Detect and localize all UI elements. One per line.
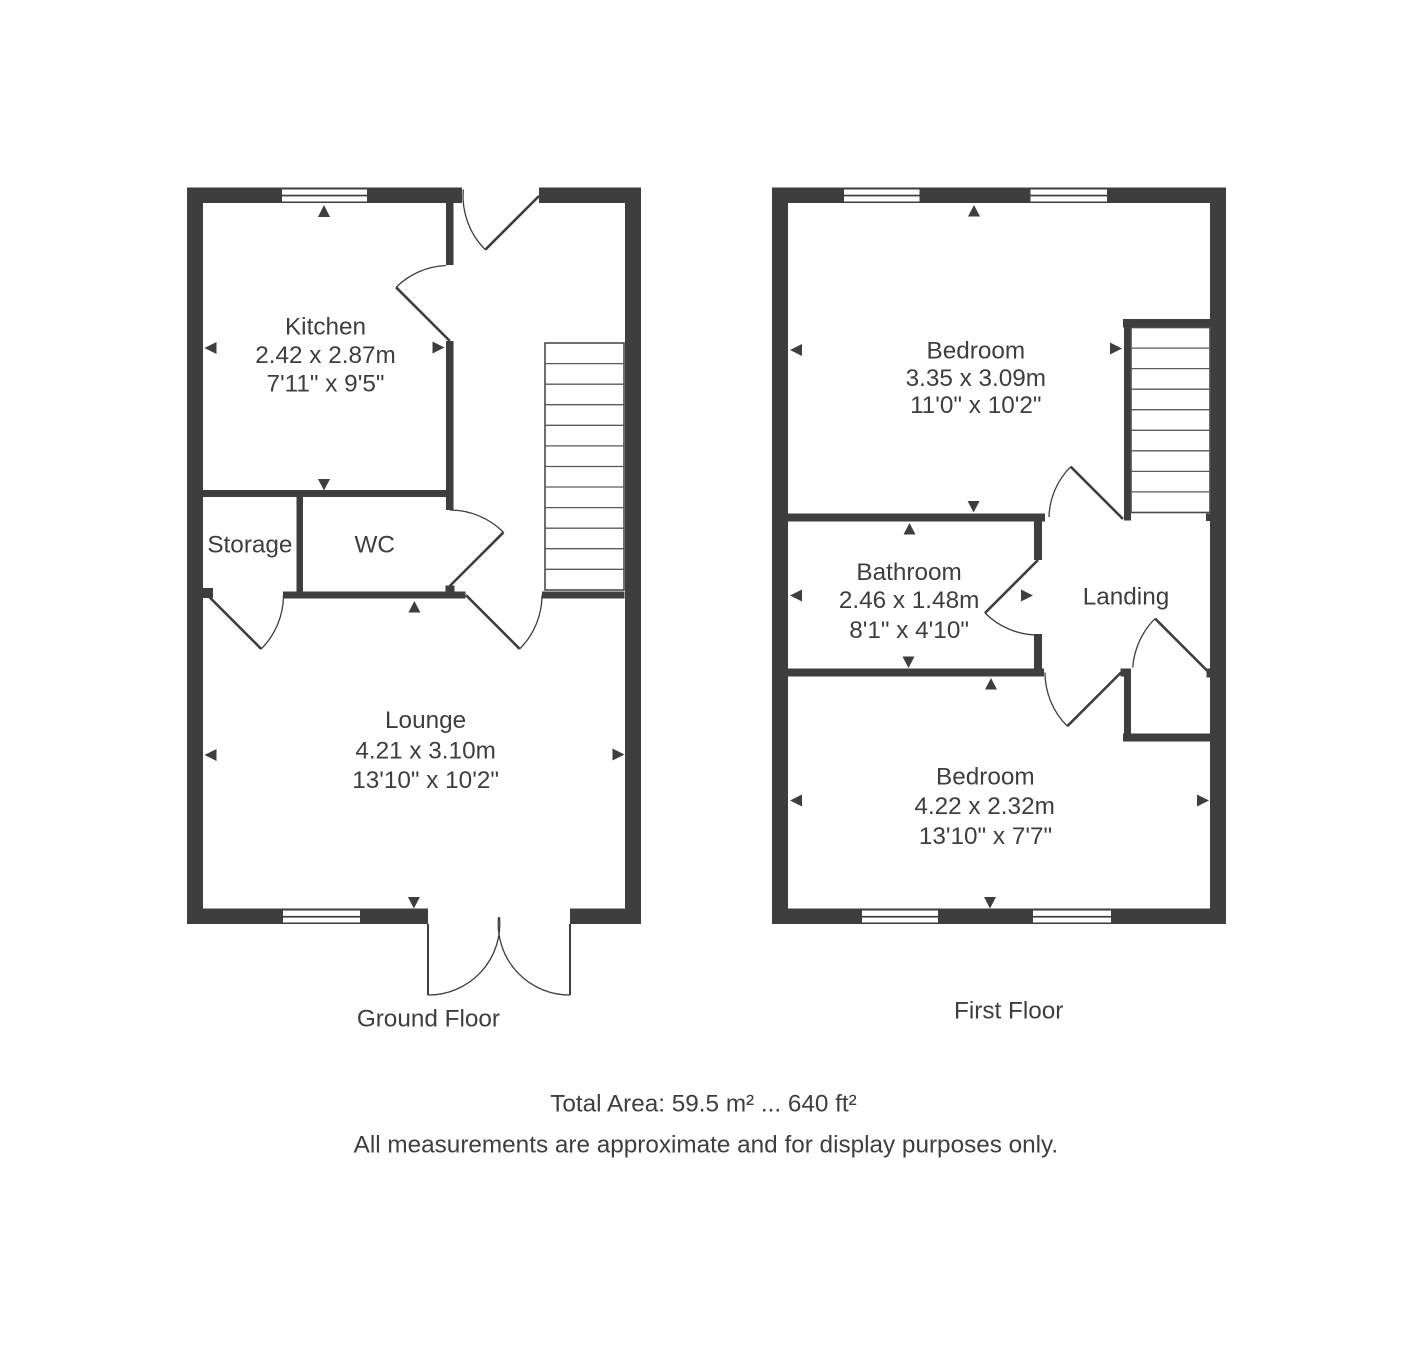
svg-text:Bathroom: Bathroom bbox=[856, 559, 961, 586]
svg-text:Bedroom: Bedroom bbox=[936, 764, 1035, 791]
svg-text:2.46 x 1.48m: 2.46 x 1.48m bbox=[839, 587, 979, 614]
svg-text:8'1" x 4'10": 8'1" x 4'10" bbox=[849, 617, 969, 644]
svg-text:Landing: Landing bbox=[1083, 583, 1169, 610]
svg-text:Kitchen: Kitchen bbox=[285, 314, 366, 341]
svg-text:WC: WC bbox=[354, 532, 394, 559]
svg-text:4.22 x 2.32m: 4.22 x 2.32m bbox=[914, 793, 1054, 820]
svg-text:Ground Floor: Ground Floor bbox=[357, 1006, 500, 1033]
svg-text:Bedroom: Bedroom bbox=[927, 338, 1026, 365]
svg-text:Lounge: Lounge bbox=[385, 707, 466, 734]
svg-text:Total Area: 59.5 m² ... 640 ft: Total Area: 59.5 m² ... 640 ft² bbox=[550, 1090, 857, 1117]
svg-text:7'11" x 9'5": 7'11" x 9'5" bbox=[267, 371, 385, 398]
svg-text:13'10" x 10'2": 13'10" x 10'2" bbox=[352, 767, 499, 794]
svg-text:First Floor: First Floor bbox=[954, 998, 1063, 1025]
svg-text:4.21 x 3.10m: 4.21 x 3.10m bbox=[355, 738, 495, 765]
svg-text:All measurements are approxima: All measurements are approximate and for… bbox=[354, 1131, 1059, 1158]
svg-text:3.35 x 3.09m: 3.35 x 3.09m bbox=[906, 365, 1046, 392]
svg-text:11'0" x 10'2": 11'0" x 10'2" bbox=[910, 392, 1041, 419]
svg-text:2.42 x 2.87m: 2.42 x 2.87m bbox=[255, 342, 395, 369]
svg-text:13'10" x 7'7": 13'10" x 7'7" bbox=[919, 823, 1052, 850]
svg-text:Storage: Storage bbox=[207, 532, 292, 559]
